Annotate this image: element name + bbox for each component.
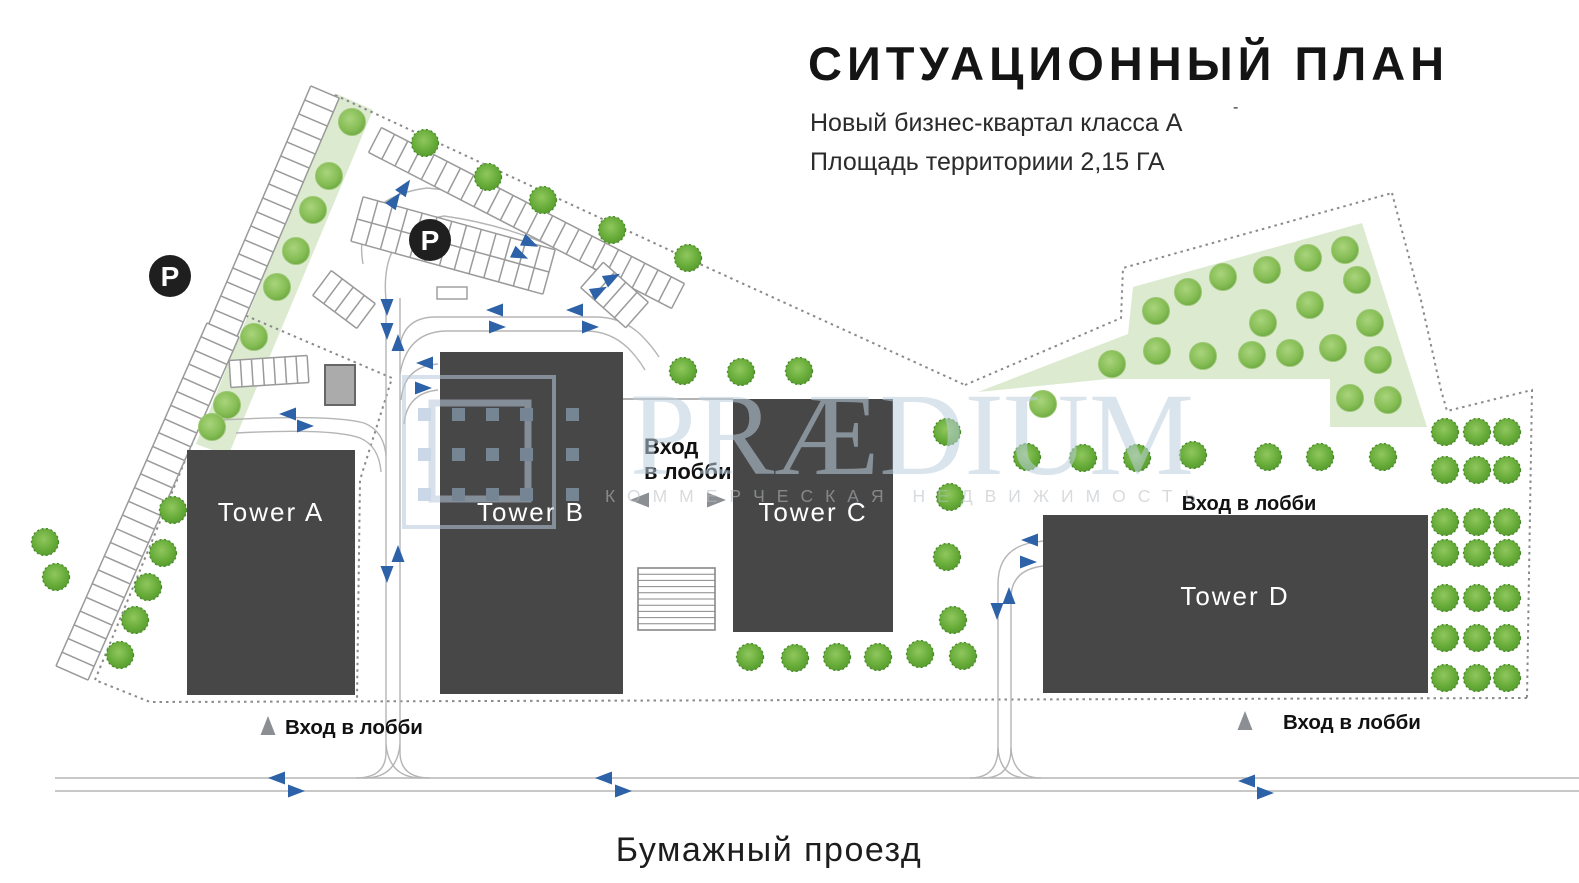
tree-icon (1464, 419, 1491, 446)
tree-icon (865, 644, 892, 671)
tree-icon (950, 643, 977, 670)
tower-a-label: Tower A (218, 497, 325, 527)
direction-arrow-icon (268, 772, 285, 785)
tree-icon (107, 642, 134, 669)
tree-icon (1494, 540, 1521, 567)
tree-icon (1190, 343, 1217, 370)
tree-icon (530, 187, 557, 214)
tree-icon (1464, 625, 1491, 652)
site-plan-canvas: Tower A Tower B Tower C Tower D Вход в л… (0, 0, 1579, 883)
tree-icon (1494, 665, 1521, 692)
entrance-arrow-icon (261, 716, 276, 735)
tree-icon (32, 529, 59, 556)
direction-arrow-icon (595, 772, 612, 785)
tree-icon (264, 274, 291, 301)
tree-icon (1432, 457, 1459, 484)
tree-icon (1464, 457, 1491, 484)
entrance-arrow-icon (1238, 711, 1253, 730)
tree-icon (1277, 340, 1304, 367)
tree-icon (1210, 264, 1237, 291)
page-title: СИТУАЦИОННЫЙ ПЛАН (808, 37, 1449, 90)
road-line (1011, 566, 1043, 756)
tree-icon (1464, 585, 1491, 612)
tree-icon (1375, 387, 1402, 414)
tree-icon (1255, 444, 1282, 471)
tree-icon (1254, 257, 1281, 284)
tree-icon (160, 497, 187, 524)
tower-d-label: Tower D (1180, 581, 1289, 611)
tree-icon (1297, 292, 1324, 319)
tree-icon (1239, 342, 1266, 369)
direction-arrow-icon (381, 299, 394, 316)
subtitle-sup-mark: - (1233, 99, 1238, 116)
header-block: СИТУАЦИОННЫЙ ПЛАН Новый бизнес-квартал к… (808, 37, 1449, 176)
direction-arrow-icon (381, 566, 394, 583)
tree-icon (241, 324, 268, 351)
tree-icon (1344, 267, 1371, 294)
tree-icon (1494, 585, 1521, 612)
tower-d[interactable]: Tower D (1043, 515, 1428, 693)
tree-icon (43, 564, 70, 591)
direction-arrow-icon (416, 357, 433, 370)
parking-icon: P (149, 255, 191, 297)
tree-icon (1307, 444, 1334, 471)
tower-a[interactable]: Tower A (187, 450, 355, 695)
road-line (970, 748, 998, 778)
entrance-bottom-left-label: Вход в лобби (285, 716, 423, 739)
direction-arrow-icon (288, 785, 305, 798)
tree-icon (1494, 419, 1521, 446)
tree-icon (599, 217, 626, 244)
tree-icon (1143, 298, 1170, 325)
tree-icon (1432, 540, 1459, 567)
subtitle-line1: Новый бизнес-квартал класса А (810, 109, 1183, 137)
parking-icon: P (409, 219, 451, 261)
direction-arrow-icon (991, 603, 1004, 620)
tree-icon (1337, 385, 1364, 412)
direction-arrow-icon (1238, 775, 1255, 788)
tree-icon (1494, 457, 1521, 484)
direction-arrow-icon (1020, 556, 1037, 569)
tree-icon (782, 645, 809, 672)
road-line (364, 744, 400, 778)
tree-icon (135, 574, 162, 601)
tree-icon (339, 109, 366, 136)
watermark-brand: PRÆDIUM (630, 369, 1194, 500)
parking-row (229, 356, 309, 388)
tree-icon (1494, 625, 1521, 652)
entrance-bottom-right-label: Вход в лобби (1283, 711, 1421, 734)
tree-icon (1432, 509, 1459, 536)
tree-icon (1365, 347, 1392, 374)
tree-icon (675, 245, 702, 272)
tree-icon (1175, 279, 1202, 306)
tree-icon (316, 163, 343, 190)
road-line (1011, 748, 1041, 778)
tree-icon (1494, 509, 1521, 536)
tree-icon (1432, 625, 1459, 652)
tree-icon (412, 130, 439, 157)
tree-icon (1432, 419, 1459, 446)
crosswalk-rect (437, 287, 467, 299)
direction-arrow-icon (297, 420, 314, 433)
tree-icon (907, 641, 934, 668)
direction-arrow-icon (279, 408, 296, 421)
direction-arrow-icon (381, 323, 394, 340)
tree-icon (1464, 665, 1491, 692)
watermark-tagline: КОММЕРЧЕСКАЯ НЕДВИЖИМОСТЬ (605, 486, 1208, 506)
direction-arrow-icon (1003, 587, 1016, 604)
road-line (386, 744, 422, 778)
tree-icon (199, 414, 226, 441)
site-plan-svg: Tower A Tower B Tower C Tower D Вход в л… (0, 0, 1579, 883)
tree-icon (1250, 310, 1277, 337)
tree-icon (1144, 338, 1171, 365)
parking-row (313, 271, 376, 329)
tree-icon (940, 607, 967, 634)
tree-icon (934, 544, 961, 571)
tree-icon (737, 644, 764, 671)
tree-icon (1320, 335, 1347, 362)
tree-icon (300, 197, 327, 224)
tree-icon (150, 540, 177, 567)
direction-arrow-icon (392, 545, 405, 562)
road-line (401, 364, 438, 400)
direction-arrow-icon (1257, 787, 1274, 800)
tree-icon (1332, 237, 1359, 264)
direction-arrow-icon (615, 785, 632, 798)
direction-arrow-icon (566, 304, 583, 317)
subtitle-line2: Площадь территориии 2,15 ГА (810, 148, 1165, 176)
tree-icon (1357, 310, 1384, 337)
tree-icon (824, 644, 851, 671)
utility-building (325, 365, 355, 405)
parking-icon-letter: P (421, 225, 440, 256)
street-label: Бумажный проезд (616, 831, 922, 869)
tree-icon (1295, 245, 1322, 272)
direction-arrow-icon (415, 382, 432, 395)
direction-arrow-icon (486, 304, 503, 317)
tree-icon (1464, 509, 1491, 536)
stairs-ramp (638, 568, 715, 630)
tree-icon (1464, 540, 1491, 567)
tree-icon (1432, 585, 1459, 612)
tree-icon (1432, 665, 1459, 692)
tree-icon (122, 607, 149, 634)
tree-icon (1370, 444, 1397, 471)
road-line (356, 298, 386, 778)
parking-icon-letter: P (161, 261, 180, 292)
road-line (998, 541, 1043, 756)
tree-icon (283, 238, 310, 265)
road-line (400, 298, 430, 778)
tree-icon (475, 164, 502, 191)
